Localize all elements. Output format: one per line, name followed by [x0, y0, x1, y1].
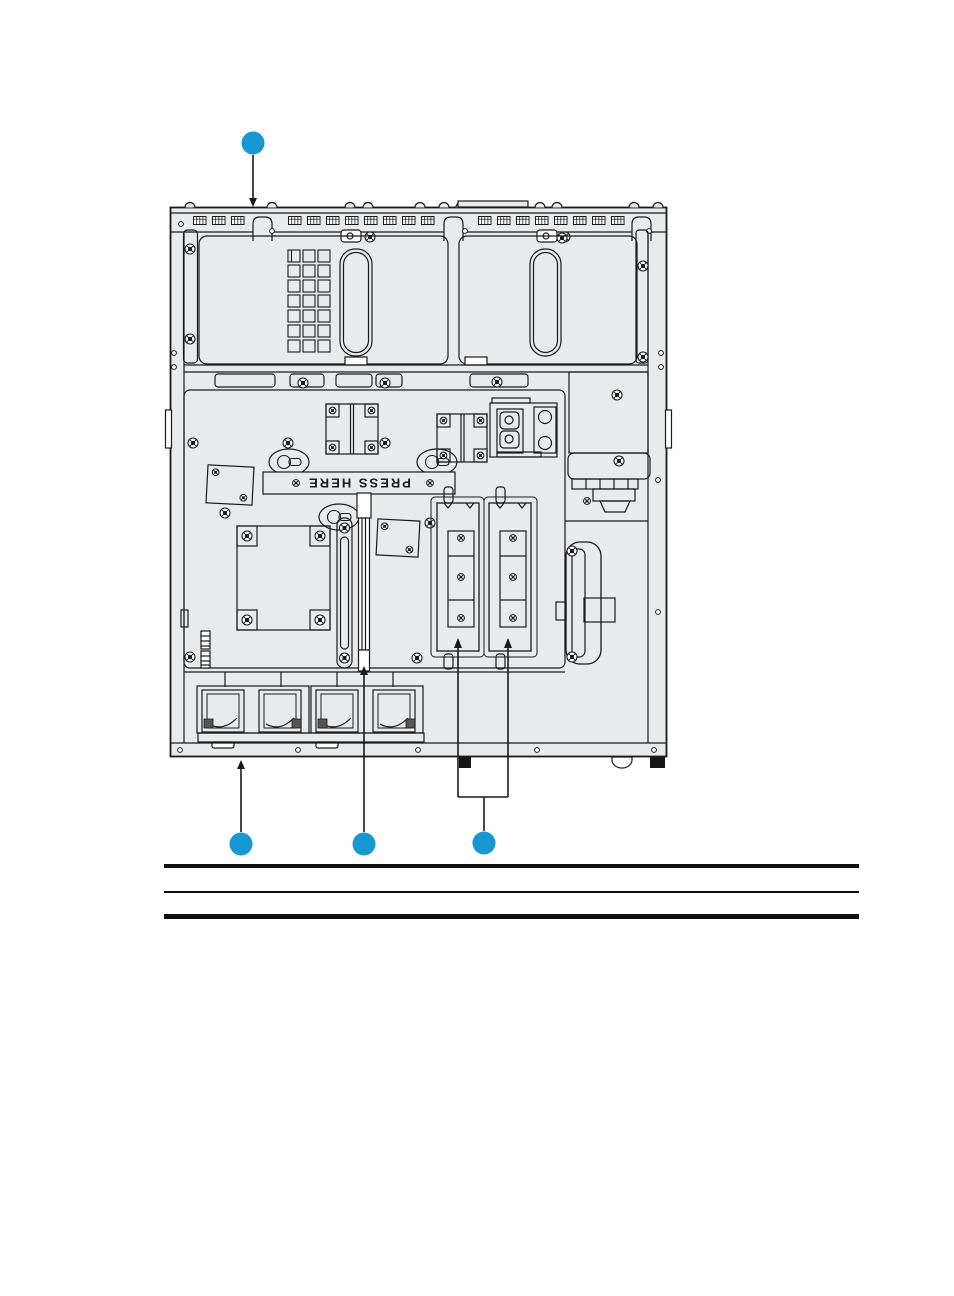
- callout-marker-icon: [230, 833, 253, 856]
- press-here-bar: PRESS HERE: [263, 472, 455, 494]
- arrow-down-icon: [249, 198, 257, 207]
- left-edge-tab: [166, 410, 172, 448]
- board-headers: [201, 631, 210, 668]
- right-edge-tab: [666, 410, 672, 448]
- press-here-label: PRESS HERE: [307, 476, 411, 491]
- square-foot: [459, 757, 471, 768]
- callout-bottom-left: [230, 760, 253, 856]
- table-top-rule: [164, 864, 859, 868]
- chassis-top-view-figure: PRESS HERE: [0, 0, 954, 1296]
- document-page: PRESS HERE: [0, 0, 954, 1296]
- top-edge-tab: [458, 201, 528, 207]
- callout-marker-icon: [473, 832, 496, 855]
- table-bottom-rule: [164, 914, 859, 919]
- arrow-up-icon: [237, 760, 245, 769]
- round-foot: [612, 757, 632, 768]
- dimm-slot: [357, 493, 371, 671]
- callout-top: [242, 132, 265, 208]
- table-header-divider-rule: [164, 891, 859, 893]
- callout-marker-icon: [353, 833, 376, 856]
- callout-marker-icon: [242, 132, 265, 155]
- square-foot: [650, 757, 665, 768]
